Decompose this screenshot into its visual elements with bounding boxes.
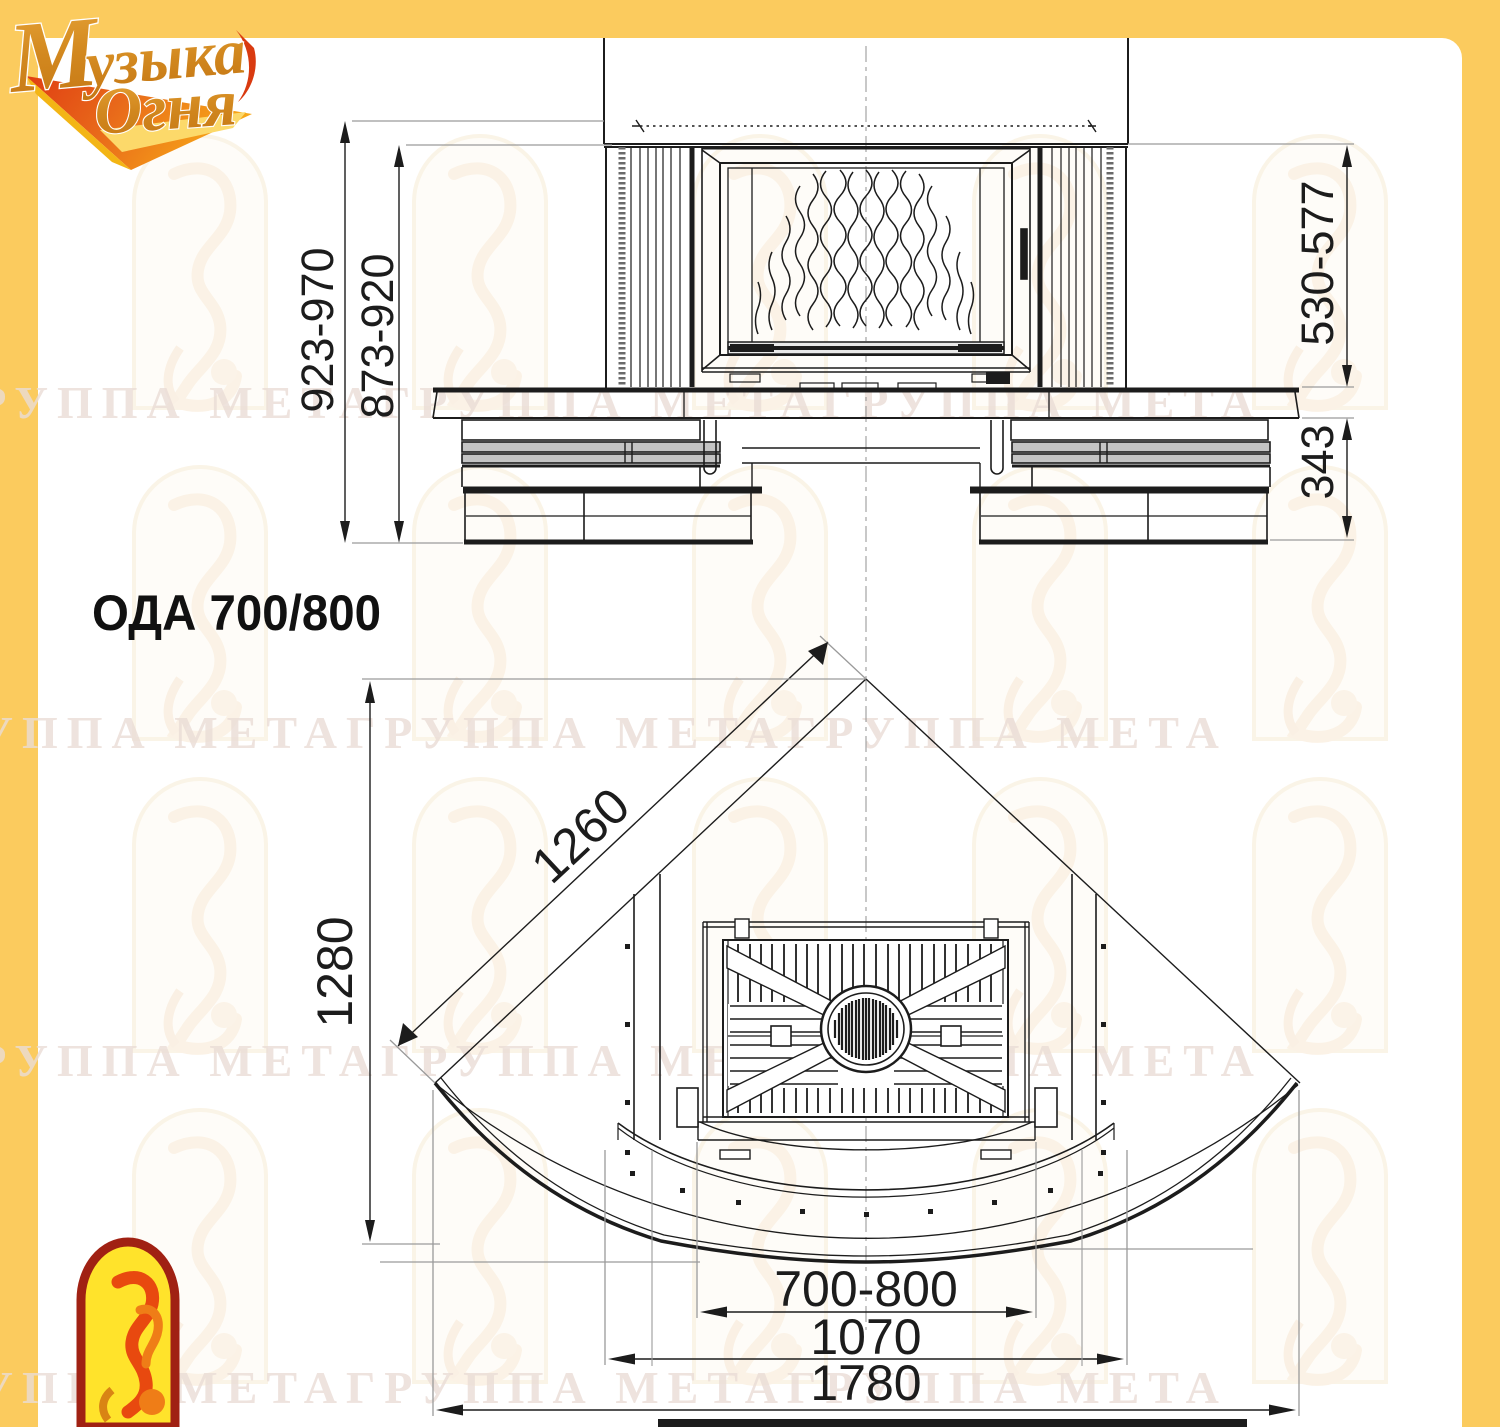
svg-text:530-577: 530-577 [1292, 180, 1343, 345]
svg-text:923-970: 923-970 [292, 247, 343, 412]
svg-text:Огня: Огня [92, 66, 239, 149]
svg-text:1780: 1780 [810, 1355, 921, 1411]
svg-text:ГРУППА МЕТАГРУППА МЕТАГРУППА М: ГРУППА МЕТАГРУППА МЕТАГРУППА МЕТА [0, 707, 1228, 758]
svg-text:873-920: 873-920 [352, 253, 403, 418]
svg-text:ГРУППА МЕТАГРУППА МЕТАГРУППА М: ГРУППА МЕТАГРУППА МЕТАГРУППА МЕТА [0, 1035, 1263, 1086]
svg-text:ГРУППА МЕТАГРУППА МЕТАГРУППА М: ГРУППА МЕТАГРУППА МЕТАГРУППА МЕТА [0, 1362, 1228, 1413]
svg-text:ОДА 700/800: ОДА 700/800 [92, 585, 381, 641]
svg-text:1280: 1280 [307, 916, 363, 1027]
svg-text:343: 343 [1292, 424, 1343, 499]
